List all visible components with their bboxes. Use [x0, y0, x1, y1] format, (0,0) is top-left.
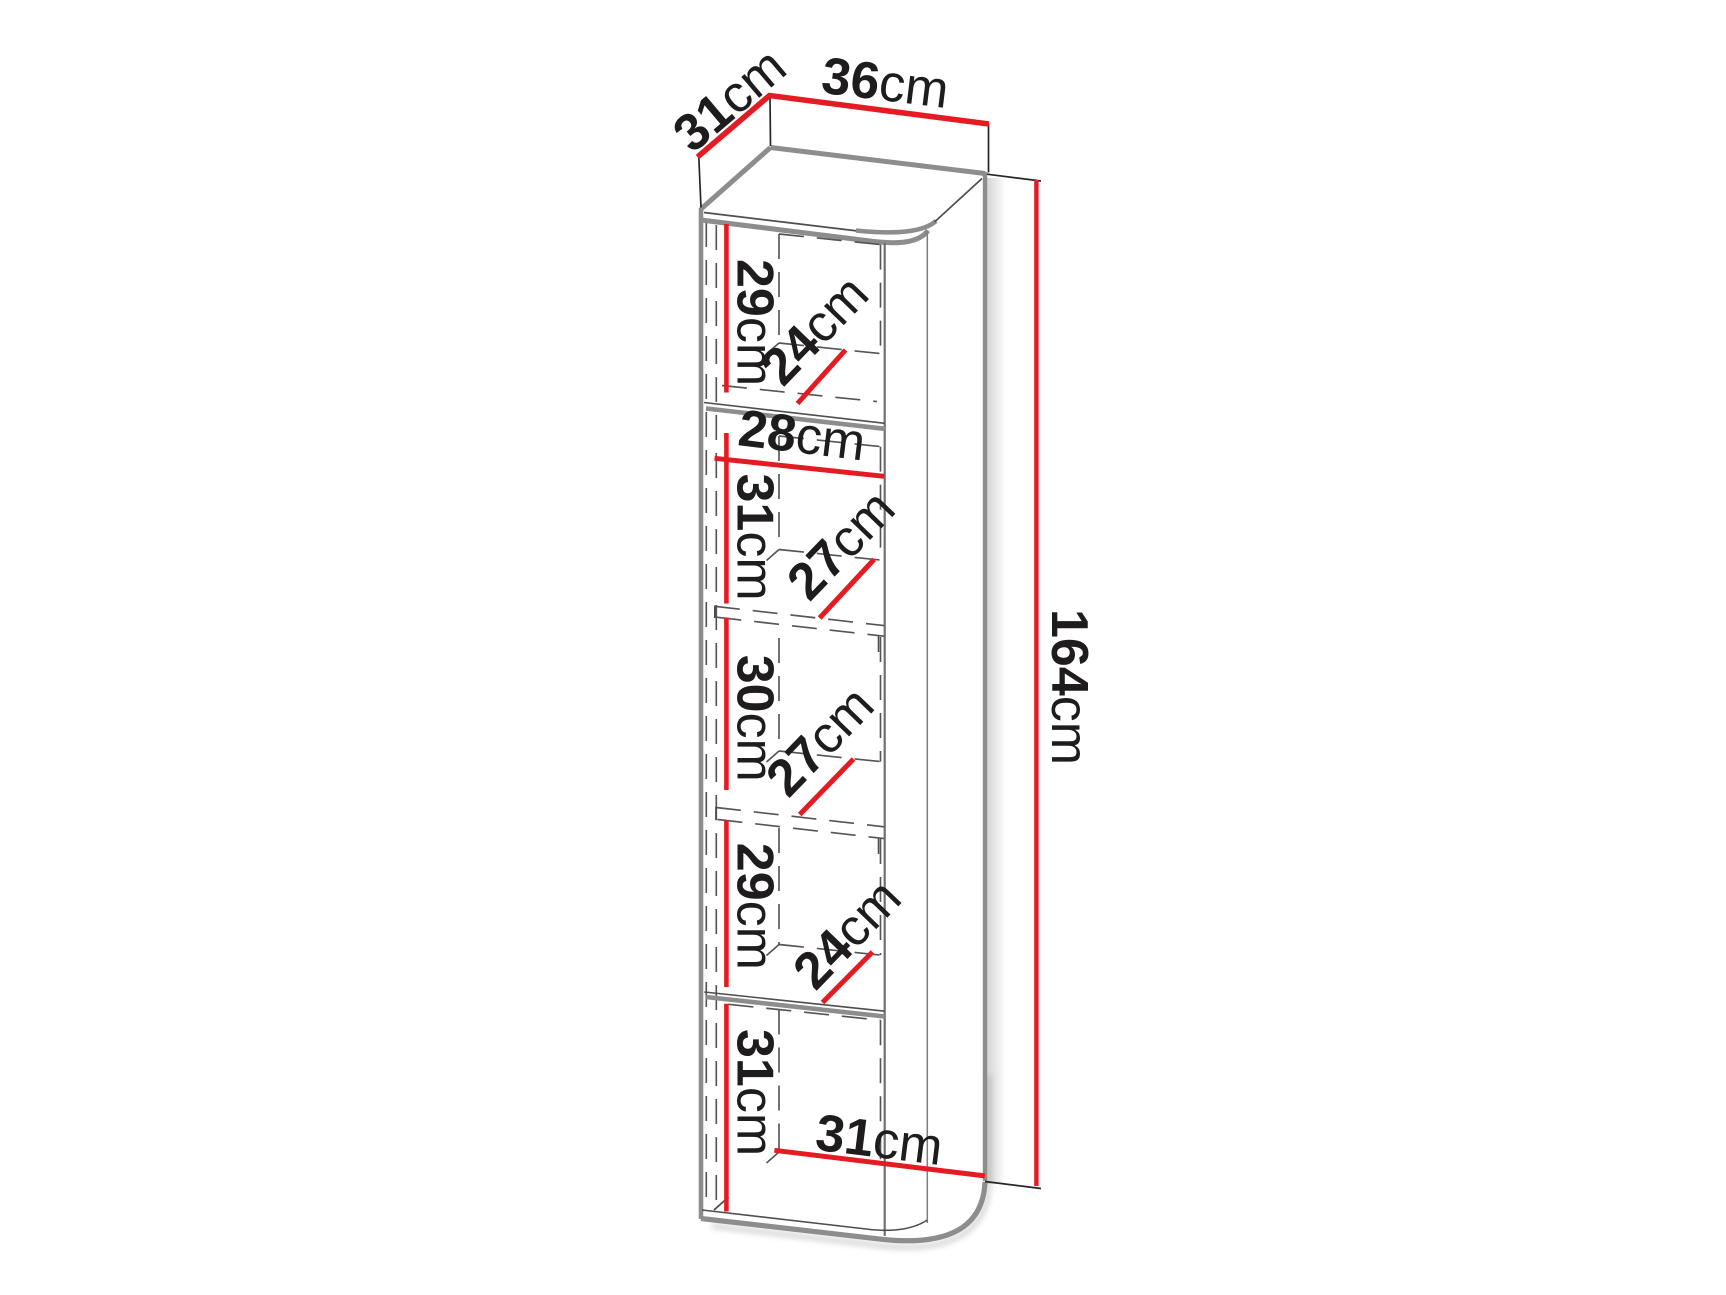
- svg-text:29cm: 29cm: [726, 843, 784, 970]
- svg-text:164cm: 164cm: [1040, 609, 1098, 765]
- svg-text:31cm: 31cm: [726, 1029, 784, 1156]
- svg-text:31cm: 31cm: [726, 474, 784, 601]
